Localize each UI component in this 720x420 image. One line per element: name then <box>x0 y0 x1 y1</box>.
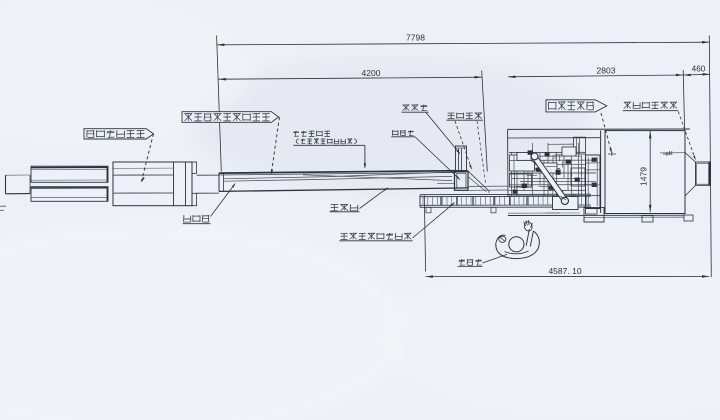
svg-text:460: 460 <box>692 65 706 74</box>
svg-text:7798: 7798 <box>406 33 425 43</box>
svg-text:2803: 2803 <box>597 66 616 76</box>
svg-text:1479: 1479 <box>639 167 649 186</box>
svg-text:4200: 4200 <box>362 68 381 78</box>
svg-text:4587. 10: 4587. 10 <box>548 266 581 276</box>
